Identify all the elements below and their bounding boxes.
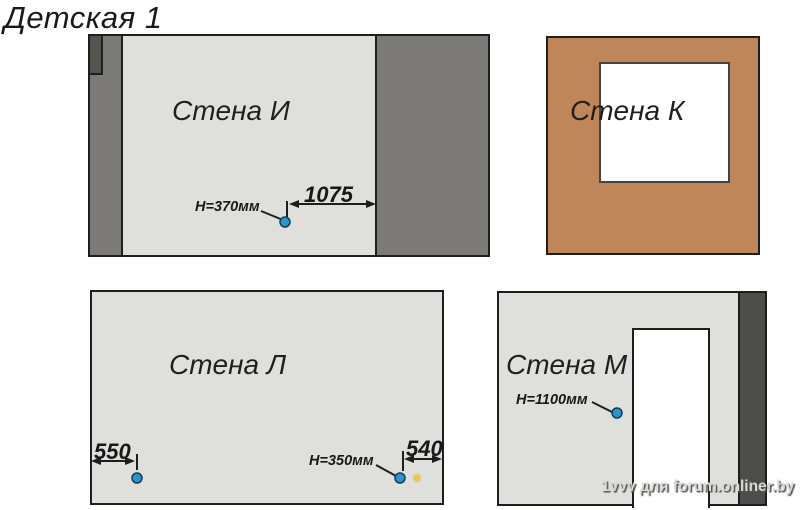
watermark: 1vvv для forum.onliner.by (601, 479, 794, 495)
wall-m-label: Стена М (506, 351, 627, 379)
wall-l-label: Стена Л (169, 351, 286, 379)
wall-k-panel (546, 36, 760, 255)
wall-m-right-strip (738, 293, 765, 504)
wall-i-panel (88, 34, 490, 257)
floor-plan-canvas: Детская 1 Стена И Стена К Стена Л Стена … (0, 0, 800, 510)
page-title: Детская 1 (4, 0, 163, 36)
wall-l-outlet-height-label: H=350мм (309, 454, 374, 469)
wall-m-outlet-height-label: H=1100мм (516, 393, 588, 408)
wall-l-dimension-left-label: 550 (94, 441, 131, 463)
wall-i-label: Стена И (172, 97, 290, 125)
wall-i-outlet-height-label: H=370мм (195, 200, 260, 215)
wall-k-label: Стена К (570, 97, 684, 125)
wall-i-dimension-label: 1075 (304, 184, 353, 206)
wall-l-panel (90, 290, 444, 505)
wall-i-dark-box (90, 36, 103, 75)
wall-l-dimension-right-label: 540 (406, 438, 443, 460)
wall-i-right-section (375, 36, 488, 255)
